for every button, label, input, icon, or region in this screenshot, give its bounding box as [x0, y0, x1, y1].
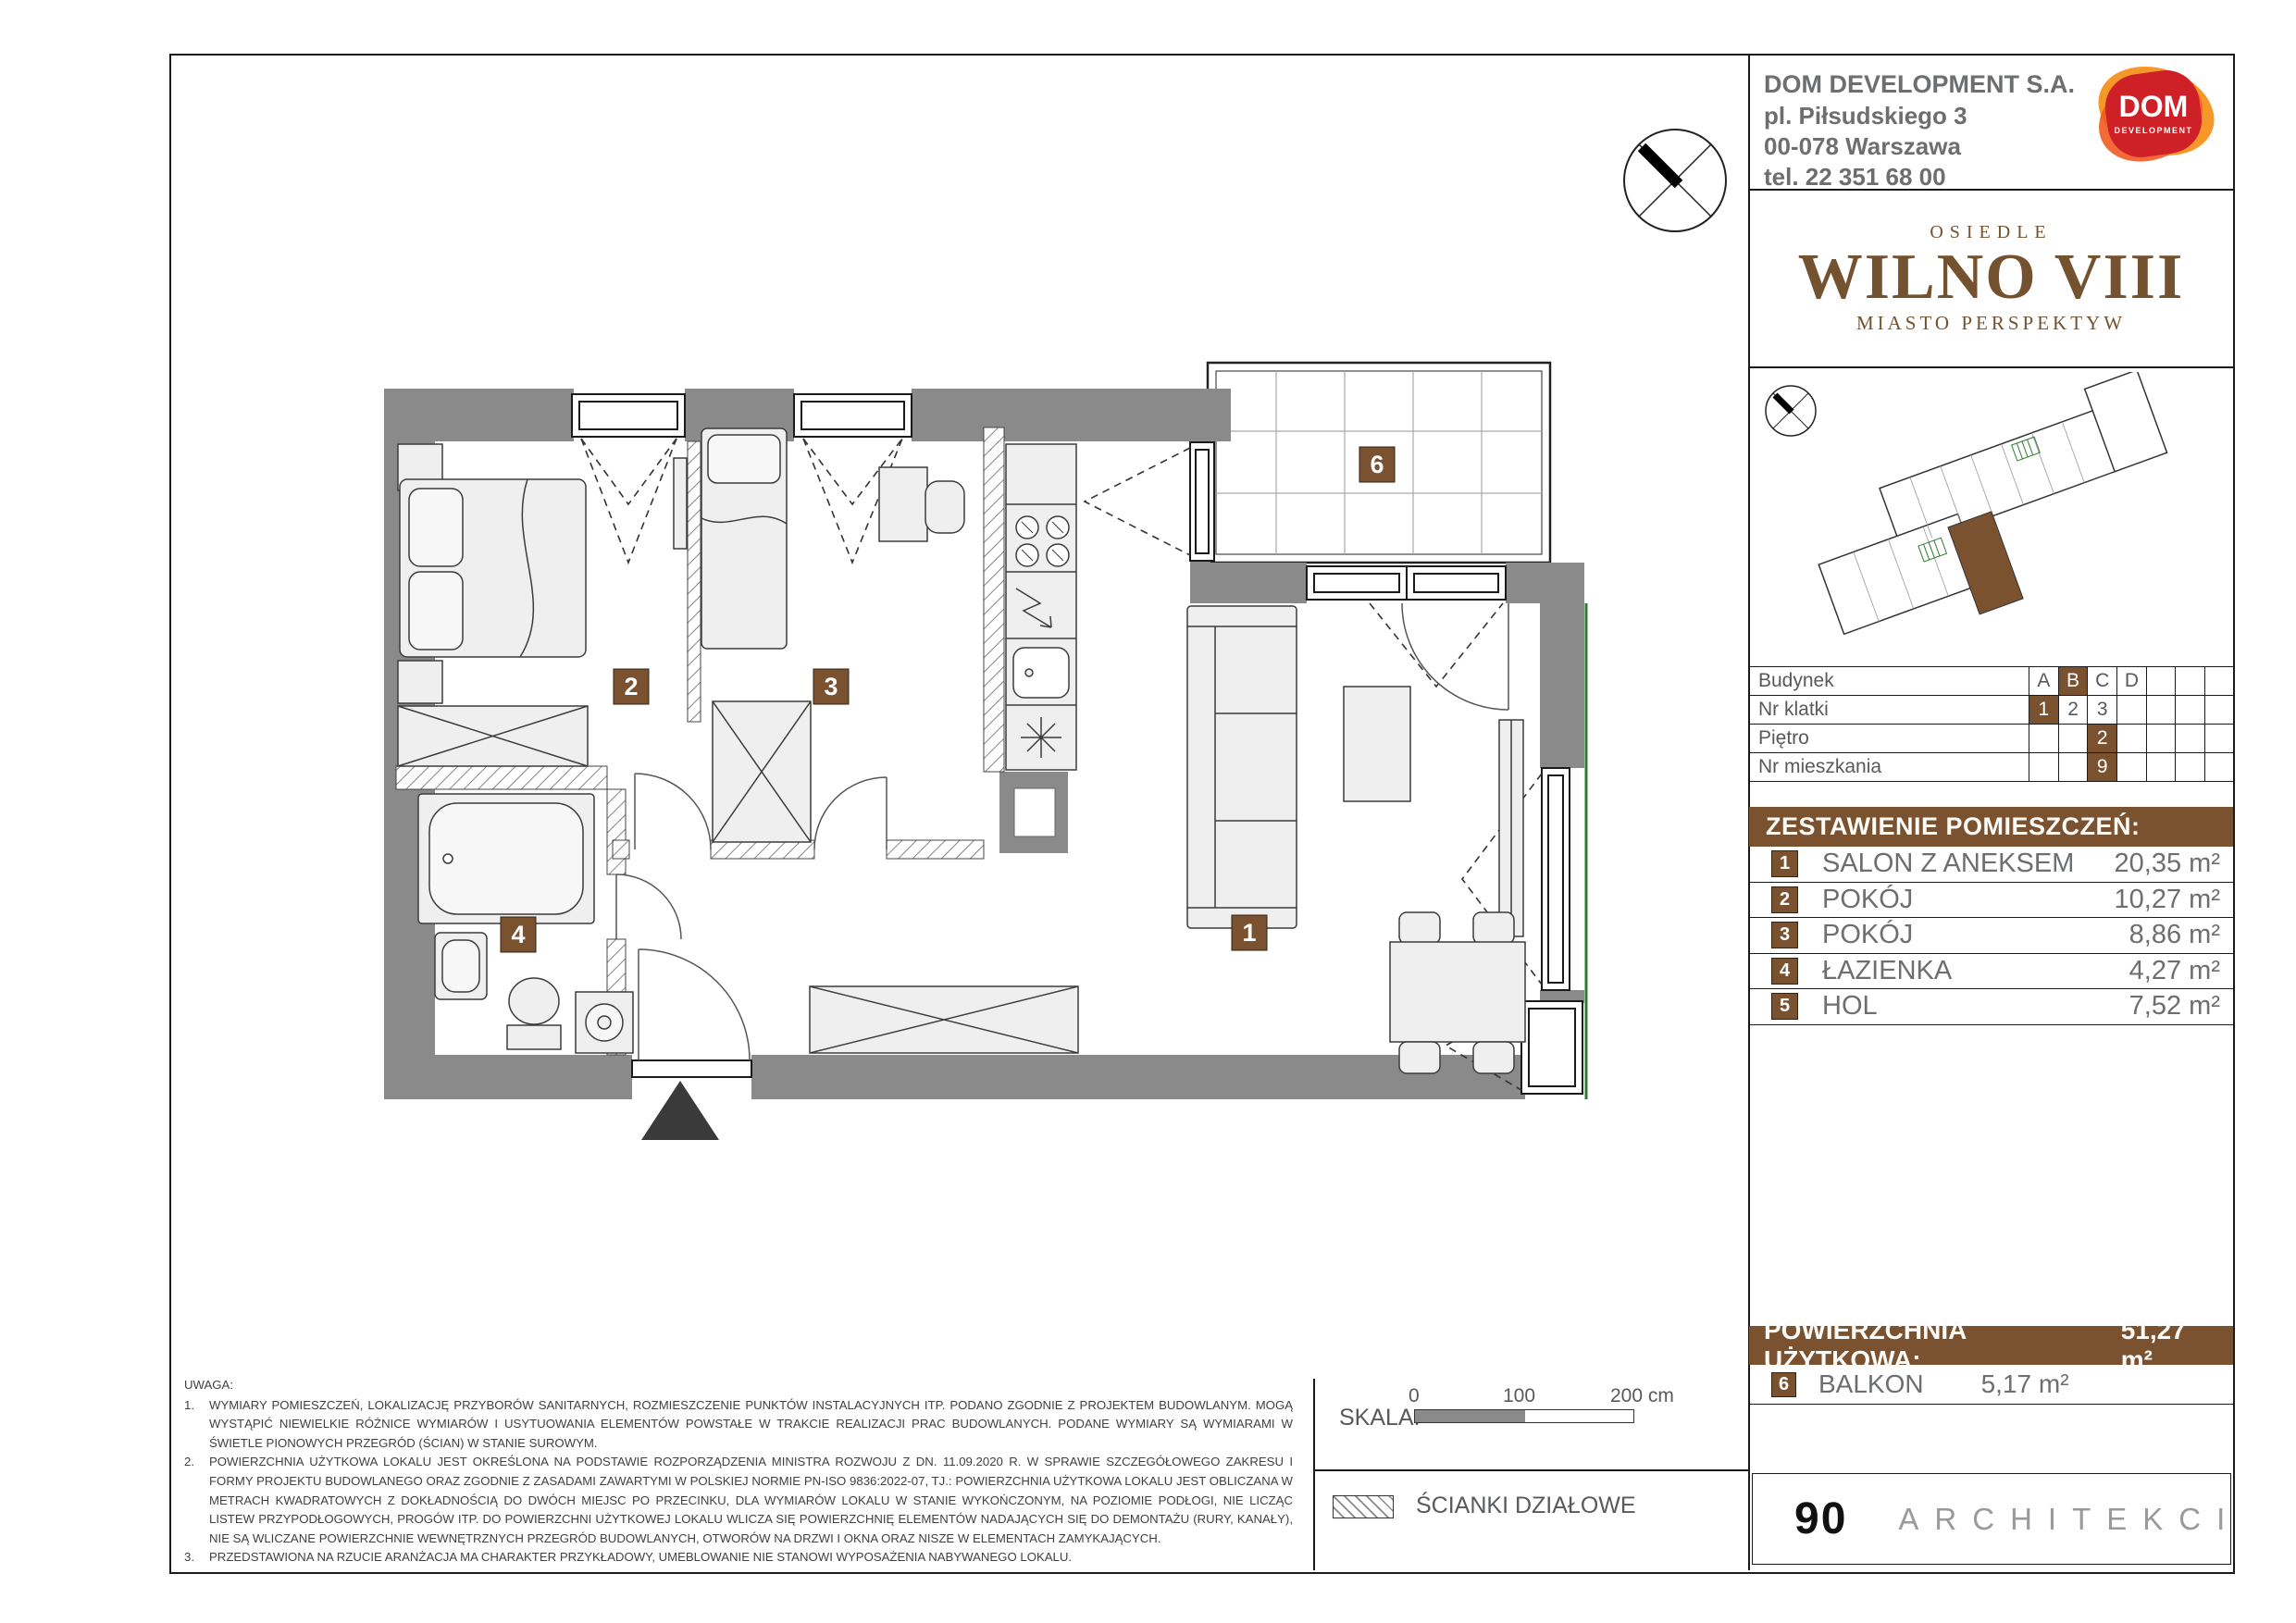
- badge-salon: 1: [1242, 919, 1256, 947]
- info-table-cell: 9: [2087, 753, 2116, 781]
- room-name: SALON Z ANEKSEM: [1822, 849, 2074, 879]
- furniture-room3: [674, 428, 964, 842]
- architects-name: ARCHITEKCI: [1898, 1502, 2240, 1537]
- compass-icon: [1624, 130, 1726, 231]
- project-name: WILNO VIII: [1798, 243, 2184, 312]
- badge-balcony: 6: [1370, 451, 1384, 478]
- room-row: 2POKÓJ10,27 m²: [1749, 883, 2233, 919]
- info-table-cell: [2058, 753, 2088, 781]
- info-table-cell: [2146, 667, 2176, 695]
- info-table-cell: [2204, 753, 2234, 781]
- building-footprint: [1793, 372, 2197, 661]
- usable-area-bar: POWIERZCHNIA UŻYTKOWA: 51,27 m²: [1749, 1326, 2233, 1365]
- room-area: 8,86 m²: [2129, 920, 2220, 950]
- note-number: 2.: [184, 1453, 209, 1548]
- rooms-title: ZESTAWIENIE POMIESZCZEŃ:: [1766, 812, 2141, 841]
- info-table-cell: A: [2029, 667, 2058, 695]
- furniture-hall: [810, 986, 1078, 1053]
- unit-info-table: BudynekABCDNr klatki123Piętro2Nr mieszka…: [1749, 666, 2234, 782]
- info-table-cell: [2175, 753, 2204, 781]
- sink: [1013, 648, 1069, 698]
- room-area: 20,35 m²: [2115, 849, 2220, 879]
- architects-box: 90 ARCHITEKCI: [1752, 1473, 2231, 1565]
- balcony-label: BALKON: [1818, 1369, 1924, 1399]
- dom-development-logo: DOM DEVELOPMENT: [2084, 57, 2225, 178]
- note-text: PRZEDSTAWIONA NA RZUCIE ARANŻACJA MA CHA…: [209, 1548, 1293, 1567]
- balcony-row: 6 BALKON 5,17 m²: [1749, 1365, 2233, 1405]
- info-table-cell: [2175, 725, 2204, 752]
- scale-tick-100: 100: [1503, 1385, 1535, 1407]
- info-table-label: Budynek: [1749, 667, 2029, 695]
- scale-label: SKALA:: [1339, 1405, 1421, 1431]
- badge-room2: 2: [624, 673, 638, 700]
- balcony-badge: 6: [1771, 1372, 1796, 1397]
- room-area: 10,27 m²: [2115, 885, 2220, 915]
- info-table-row: Piętro2: [1749, 725, 2234, 753]
- location-diagram: [1754, 372, 2230, 664]
- project-logo: OSIEDLE WILNO VIII MIASTO PERSPEKTYW: [1749, 191, 2233, 366]
- info-table-label: Piętro: [1749, 725, 2029, 752]
- info-table-cell: [2204, 696, 2234, 724]
- notes-heading: UWAGA:: [184, 1376, 1293, 1395]
- info-table-cell: [2029, 753, 2058, 781]
- info-table-cell: [2116, 696, 2146, 724]
- room-no: 3: [1771, 922, 1798, 948]
- info-table-row: Nr klatki123: [1749, 696, 2234, 725]
- room-name: POKÓJ: [1822, 920, 1913, 950]
- partition-legend-label: ŚCIANKI DZIAŁOWE: [1416, 1493, 1636, 1519]
- info-table-cell: C: [2087, 667, 2116, 695]
- info-table-cell: [2204, 725, 2234, 752]
- info-table-cell: 2: [2087, 725, 2116, 752]
- mini-compass-icon: [1766, 386, 1816, 436]
- room-name: HOL: [1822, 991, 1878, 1022]
- info-table-cell: [2175, 667, 2204, 695]
- info-table-label: Nr mieszkania: [1749, 753, 2029, 781]
- furniture-living: [1187, 606, 1525, 1073]
- shaft: [1014, 788, 1055, 836]
- info-table-row: BudynekABCD: [1749, 667, 2234, 696]
- room-no: 5: [1771, 993, 1798, 1020]
- info-table-cell: [2116, 725, 2146, 752]
- scale-bar-filled: [1415, 1410, 1525, 1422]
- info-table-cell: [2146, 753, 2176, 781]
- project-tagline: MIASTO PERSPEKTYW: [1856, 312, 2126, 335]
- scale-tick-200: 200 cm: [1610, 1385, 1674, 1407]
- scale-tick-0: 0: [1409, 1385, 1420, 1407]
- room-no: 4: [1771, 958, 1798, 985]
- dom-logo-subtext: DEVELOPMENT: [2114, 126, 2192, 135]
- project-over: OSIEDLE: [1930, 222, 2052, 243]
- info-table-cell: 2: [2058, 696, 2088, 724]
- rooms-table: 1SALON Z ANEKSEM20,35 m²2POKÓJ10,27 m²3P…: [1749, 847, 2233, 1025]
- developer-phone: tel. 22 351 68 00: [1764, 162, 2097, 192]
- badge-room3: 3: [824, 673, 838, 700]
- info-table-cell: [2146, 696, 2176, 724]
- room-row: 1SALON Z ANEKSEM20,35 m²: [1749, 847, 2233, 883]
- notes-block: UWAGA: 1.WYMIARY POMIESZCZEŃ, LOKALIZACJ…: [184, 1376, 1293, 1567]
- info-table-cell: [2175, 696, 2204, 724]
- dom-logo-text: DOM: [2119, 90, 2189, 123]
- room-no: 1: [1771, 850, 1798, 877]
- info-table-cell: [2058, 725, 2088, 752]
- note-item: 1.WYMIARY POMIESZCZEŃ, LOKALIZACJĘ PRZYB…: [184, 1396, 1293, 1454]
- architects-number: 90: [1794, 1493, 1847, 1544]
- badge-bathroom: 4: [511, 921, 525, 948]
- developer-block: DOM DEVELOPMENT S.A. pl. Piłsudskiego 3 …: [1764, 68, 2097, 192]
- kitchen-annex: [1006, 444, 1076, 770]
- entrance-arrow: [641, 1081, 719, 1140]
- note-item: 3.PRZEDSTAWIONA NA RZUCIE ARANŻACJA MA C…: [184, 1548, 1293, 1567]
- info-table-cell: [2116, 753, 2146, 781]
- rooms-header: ZESTAWIENIE POMIESZCZEŃ:: [1749, 807, 2233, 847]
- notes-list: 1.WYMIARY POMIESZCZEŃ, LOKALIZACJĘ PRZYB…: [184, 1396, 1293, 1567]
- room-row: 5HOL7,52 m²: [1749, 989, 2233, 1025]
- info-table-cell: [2146, 725, 2176, 752]
- info-table-cell: 3: [2087, 696, 2116, 724]
- info-table-cell: 1: [2029, 696, 2058, 724]
- room-name: POKÓJ: [1822, 885, 1913, 915]
- note-number: 1.: [184, 1396, 209, 1454]
- partition-legend-swatch: [1333, 1495, 1394, 1518]
- developer-address1: pl. Piłsudskiego 3: [1764, 101, 2097, 131]
- info-table-cell: B: [2058, 667, 2088, 695]
- scale-bar: [1414, 1409, 1634, 1423]
- developer-address2: 00-078 Warszawa: [1764, 131, 2097, 162]
- furniture-room2: [398, 444, 588, 766]
- room-no: 2: [1771, 886, 1798, 913]
- room-row: 3POKÓJ8,86 m²: [1749, 918, 2233, 954]
- note-text: WYMIARY POMIESZCZEŃ, LOKALIZACJĘ PRZYBOR…: [209, 1396, 1293, 1454]
- info-table-cell: [2204, 667, 2234, 695]
- info-table-cell: D: [2116, 667, 2146, 695]
- info-table-row: Nr mieszkania9: [1749, 753, 2234, 782]
- info-table-label: Nr klatki: [1749, 696, 2029, 724]
- room-name: ŁAZIENKA: [1822, 956, 1952, 986]
- note-number: 3.: [184, 1548, 209, 1567]
- note-item: 2.POWIERZCHNIA UŻYTKOWA LOKALU JEST OKRE…: [184, 1453, 1293, 1548]
- room-row: 4ŁAZIENKA4,27 m²: [1749, 954, 2233, 990]
- note-text: POWIERZCHNIA UŻYTKOWA LOKALU JEST OKREŚL…: [209, 1453, 1293, 1548]
- room-area: 4,27 m²: [2129, 956, 2220, 986]
- balcony-area: 5,17 m²: [1981, 1369, 2069, 1399]
- developer-name: DOM DEVELOPMENT S.A.: [1764, 68, 2097, 101]
- info-table-cell: [2029, 725, 2058, 752]
- room-area: 7,52 m²: [2129, 991, 2220, 1022]
- floorplan-sheet: 1 2 3 4 6 DOM DEVELOPMENT S.A. pl. Piłsu…: [0, 0, 2296, 1623]
